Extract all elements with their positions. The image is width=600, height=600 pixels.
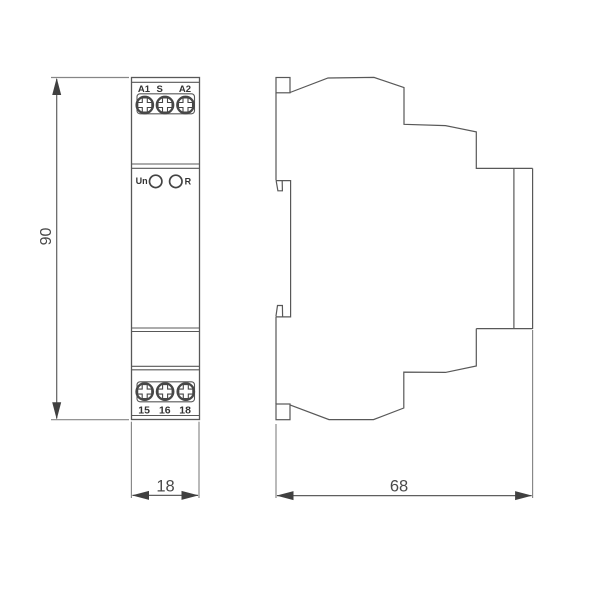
svg-text:16: 16	[159, 404, 171, 416]
svg-text:68: 68	[390, 478, 408, 496]
svg-text:15: 15	[138, 404, 150, 416]
svg-text:90: 90	[38, 228, 55, 246]
svg-text:18: 18	[156, 477, 174, 495]
svg-text:Un: Un	[136, 176, 148, 186]
svg-text:18: 18	[179, 404, 191, 416]
svg-text:R: R	[185, 177, 192, 187]
